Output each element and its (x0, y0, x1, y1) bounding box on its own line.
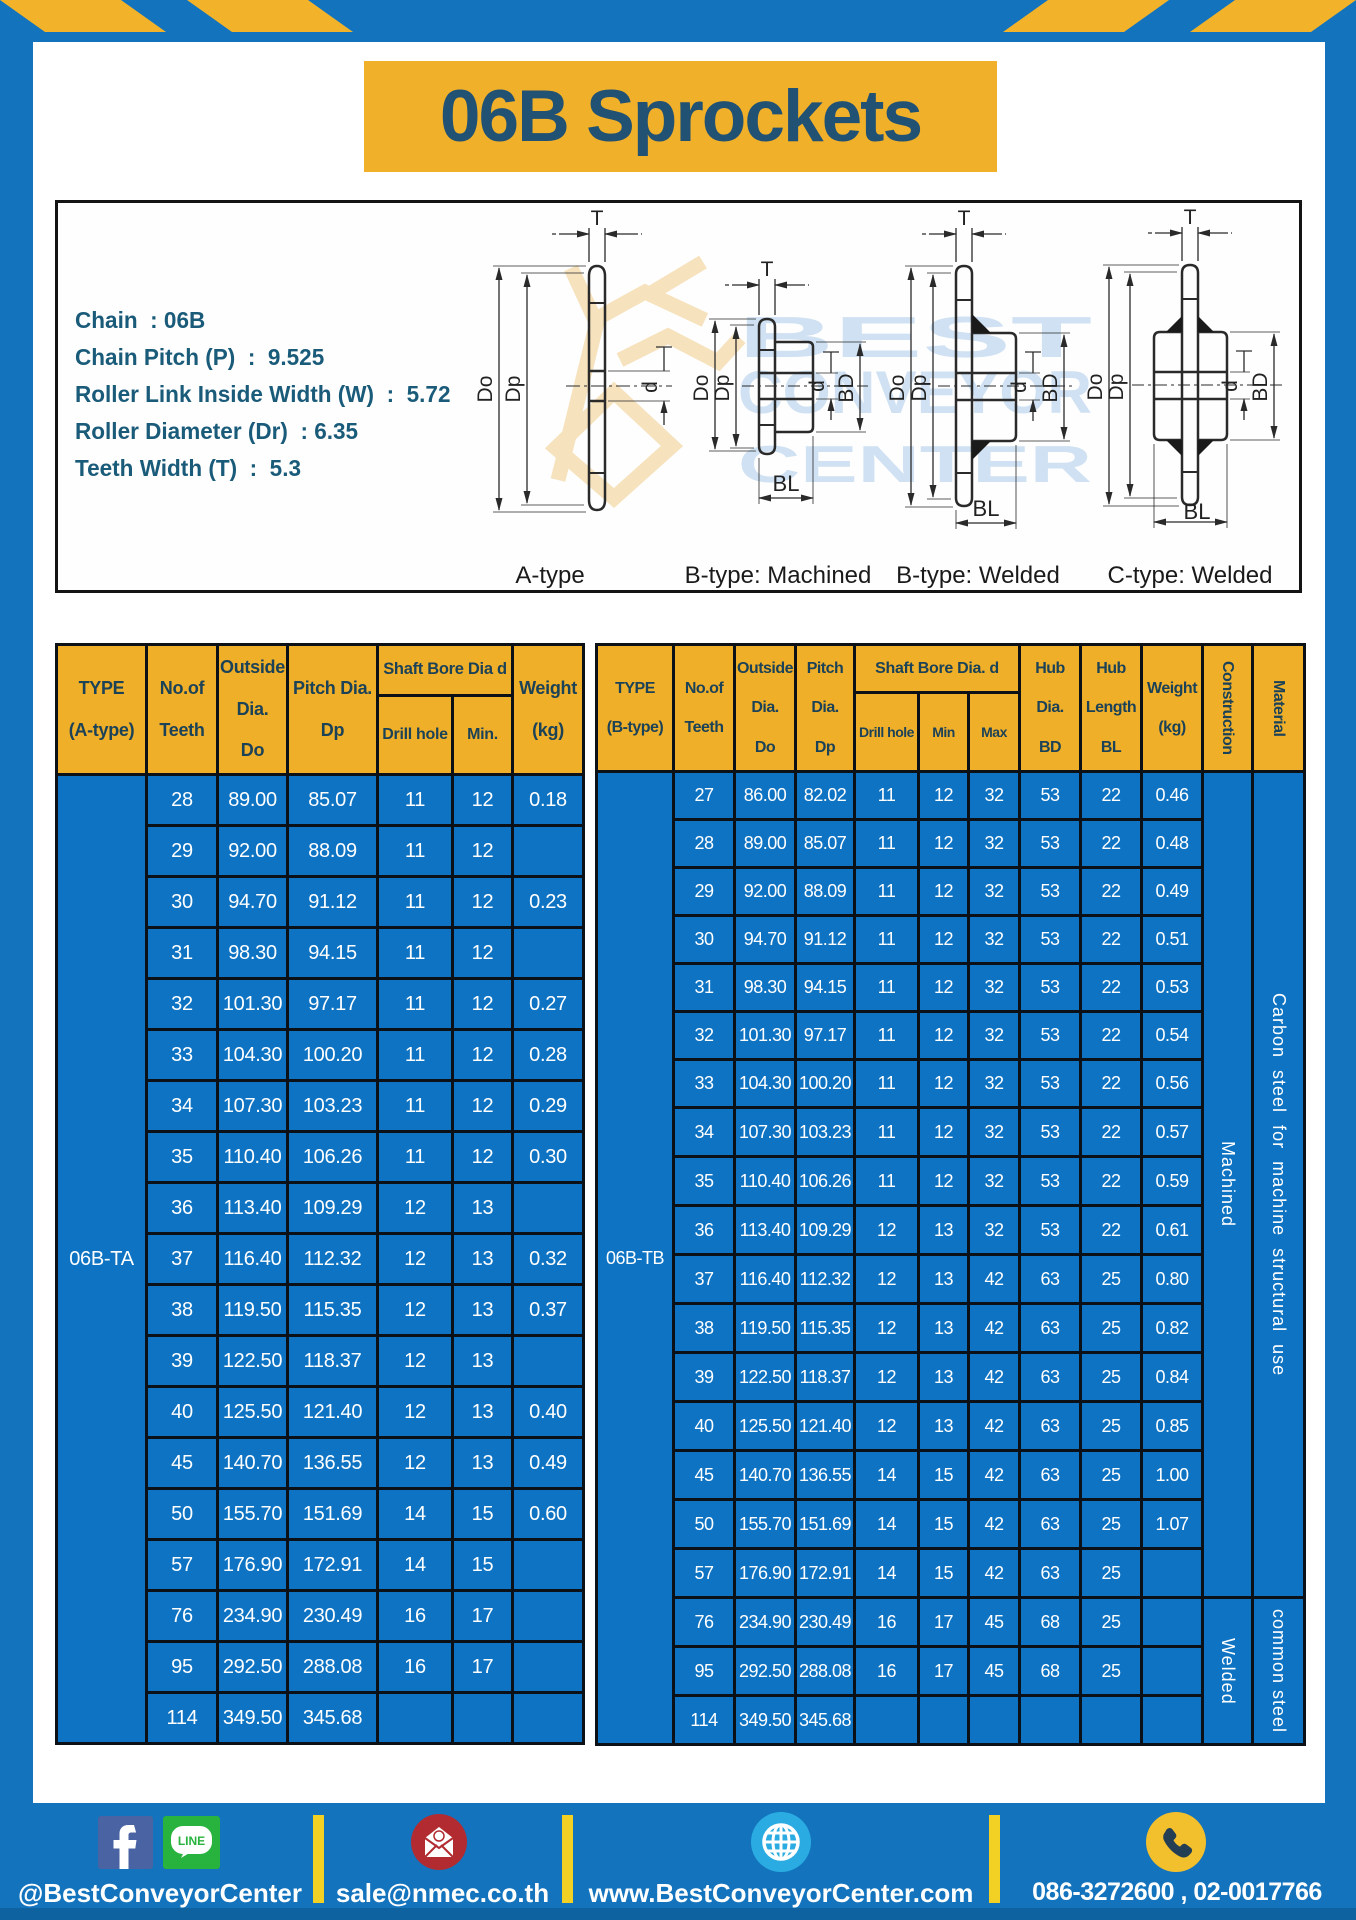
svg-text:T: T (761, 258, 774, 281)
svg-text:A-type: A-type (515, 562, 584, 589)
svg-text:d: d (806, 380, 829, 392)
svg-text:T: T (958, 207, 971, 230)
svg-text:BL: BL (1184, 499, 1211, 524)
svg-text:Dp: Dp (711, 375, 734, 402)
svg-text:T: T (1184, 206, 1197, 229)
svg-text:C-type: Welded: C-type: Welded (1108, 562, 1273, 589)
svg-text:BD: BD (835, 373, 858, 402)
svg-text:B-type: Welded: B-type: Welded (896, 562, 1060, 589)
svg-text:Do: Do (690, 375, 713, 402)
svg-text:BL: BL (773, 471, 800, 496)
svg-text:Do: Do (474, 376, 497, 403)
svg-text:BD: BD (1039, 373, 1062, 402)
svg-text:Do: Do (1084, 374, 1107, 401)
svg-text:Do: Do (886, 375, 909, 402)
svg-text:BD: BD (1249, 372, 1272, 401)
svg-text:d: d (639, 381, 662, 393)
svg-text:T: T (591, 207, 604, 230)
svg-text:Dp: Dp (908, 375, 931, 402)
svg-text:Dp: Dp (502, 376, 525, 403)
svg-text:BL: BL (973, 496, 1000, 521)
svg-text:d: d (1219, 380, 1242, 392)
svg-text:LINE: LINE (178, 1834, 205, 1848)
svg-text:d: d (1008, 381, 1031, 393)
svg-text:Dp: Dp (1105, 374, 1128, 401)
svg-text:B-type: Machined: B-type: Machined (685, 562, 872, 589)
